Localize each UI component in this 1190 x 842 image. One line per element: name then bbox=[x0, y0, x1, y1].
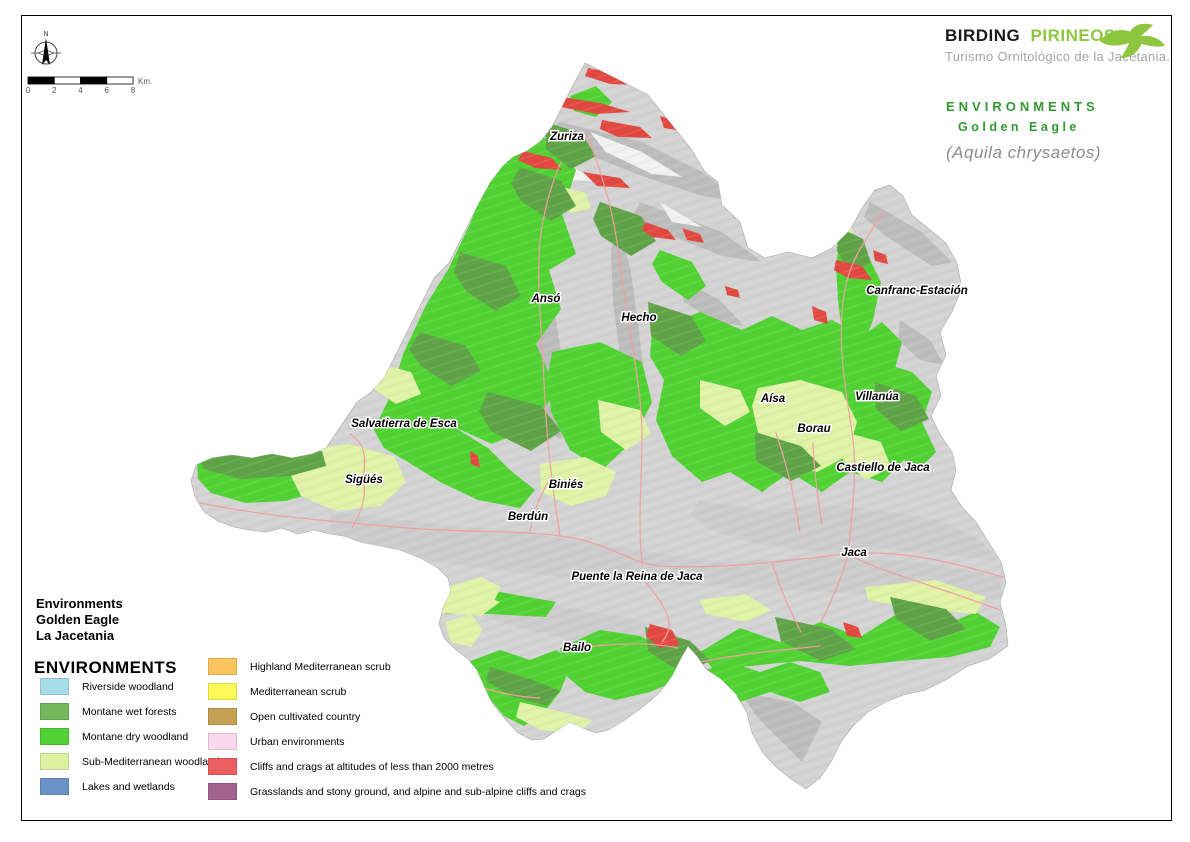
legend-column-left: Riverside woodland Montane wet forests M… bbox=[40, 678, 220, 795]
legend-label: Highland Mediterranean scrub bbox=[250, 661, 391, 673]
brand-block: BIRDING PIRINEOS Turismo Ornitológico de… bbox=[945, 26, 1185, 64]
legend-swatch bbox=[40, 728, 69, 745]
legend-title-line: La Jacetania bbox=[36, 628, 573, 644]
legend-title: Environments Golden Eagle La Jacetania bbox=[36, 596, 573, 644]
place-label-zuriza: Zuriza bbox=[549, 131, 584, 143]
legend: Environments Golden Eagle La Jacetania E… bbox=[33, 596, 573, 678]
legend-title-line: Environments bbox=[36, 596, 573, 612]
place-label-villanua: Villanúa bbox=[855, 391, 899, 403]
species-latin-name: (Aquila chrysaetos) bbox=[946, 143, 1166, 163]
place-label-hecho: Hecho bbox=[621, 312, 656, 324]
scale-segment bbox=[107, 77, 133, 84]
scale-tick: 0 bbox=[26, 86, 31, 95]
legend-item-montane-dry-woodland: Montane dry woodland bbox=[40, 728, 220, 745]
legend-swatch bbox=[208, 658, 237, 675]
legend-label: Open cultivated country bbox=[250, 711, 360, 723]
scale-bar: 0 2 4 6 8 Km. bbox=[26, 77, 152, 95]
legend-item-open-cultivated-country: Open cultivated country bbox=[208, 708, 586, 725]
legend-label: Grasslands and stony ground, and alpine … bbox=[250, 786, 586, 798]
legend-label: Riverside woodland bbox=[82, 681, 174, 693]
legend-item-sub-mediterranean-woodland: Sub-Mediterranean woodland bbox=[40, 753, 220, 770]
scale-tick: 2 bbox=[52, 86, 57, 95]
legend-swatch bbox=[40, 703, 69, 720]
legend-swatch bbox=[208, 733, 237, 750]
place-label-castiello-de-jaca: Castiello de Jaca bbox=[836, 462, 930, 474]
legend-swatch bbox=[40, 778, 69, 795]
legend-item-cliffs-and-crags: Cliffs and crags at altitudes of less th… bbox=[208, 758, 586, 775]
place-label-borau: Borau bbox=[797, 423, 830, 435]
legend-item-lakes-and-wetlands: Lakes and wetlands bbox=[40, 778, 220, 795]
legend-column-right: Highland Mediterranean scrub Mediterrane… bbox=[208, 658, 586, 800]
legend-swatch bbox=[208, 758, 237, 775]
place-label-berdun: Berdún bbox=[508, 511, 548, 523]
scale-tick: 6 bbox=[105, 86, 110, 95]
legend-label: Montane wet forests bbox=[82, 706, 177, 718]
legend-swatch bbox=[40, 678, 69, 695]
legend-swatch bbox=[208, 783, 237, 800]
place-label-canfranc-estacion: Canfranc-Estación bbox=[866, 285, 968, 297]
place-label-anso: Ansó bbox=[531, 293, 561, 305]
brand-name-birding: BIRDING bbox=[945, 26, 1020, 45]
legend-item-grasslands-and-stony-ground: Grasslands and stony ground, and alpine … bbox=[208, 783, 586, 800]
title-block: ENVIRONMENTS Golden Eagle (Aquila chrysa… bbox=[946, 99, 1166, 163]
map-title: ENVIRONMENTS bbox=[946, 99, 1166, 114]
legend-label: Mediterranean scrub bbox=[250, 686, 346, 698]
legend-swatch bbox=[40, 753, 69, 770]
legend-label: Cliffs and crags at altitudes of less th… bbox=[250, 761, 494, 773]
place-label-aisa: Aísa bbox=[760, 393, 786, 405]
place-label-jaca: Jaca bbox=[841, 547, 867, 559]
legend-swatch bbox=[208, 683, 237, 700]
legend-item-montane-wet-forests: Montane wet forests bbox=[40, 703, 220, 720]
place-label-binies: Biniés bbox=[549, 479, 584, 491]
scale-segment bbox=[28, 77, 54, 84]
place-label-sigues: Sigüés bbox=[345, 474, 383, 486]
scale-segment bbox=[54, 77, 80, 84]
place-label-puente-la-reina-de-jaca: Puente la Reina de Jaca bbox=[571, 571, 703, 583]
scale-tick: 4 bbox=[78, 86, 83, 95]
legend-item-highland-mediterranean-scrub: Highland Mediterranean scrub bbox=[208, 658, 586, 675]
place-label-salvatierra-de-esca: Salvatierra de Esca bbox=[351, 418, 457, 430]
compass-north-label: N bbox=[43, 31, 48, 38]
legend-label: Lakes and wetlands bbox=[82, 781, 175, 793]
legend-label: Urban environments bbox=[250, 736, 345, 748]
legend-label: Montane dry woodland bbox=[82, 731, 188, 743]
scale-unit: Km. bbox=[138, 77, 152, 86]
compass-rose: N bbox=[31, 31, 61, 65]
legend-title-line: Golden Eagle bbox=[36, 612, 573, 628]
legend-swatch bbox=[208, 708, 237, 725]
legend-item-riverside-woodland: Riverside woodland bbox=[40, 678, 220, 695]
legend-item-mediterranean-scrub: Mediterranean scrub bbox=[208, 683, 586, 700]
bird-logo-icon bbox=[1097, 22, 1167, 60]
legend-item-urban-environments: Urban environments bbox=[208, 733, 586, 750]
map-sheet: N 0 2 4 6 8 Km. bbox=[0, 0, 1190, 842]
scale-tick: 8 bbox=[131, 86, 136, 95]
map-subtitle-species: Golden Eagle bbox=[958, 120, 1166, 134]
scale-segment bbox=[81, 77, 107, 84]
legend-label: Sub-Mediterranean woodland bbox=[82, 756, 220, 768]
